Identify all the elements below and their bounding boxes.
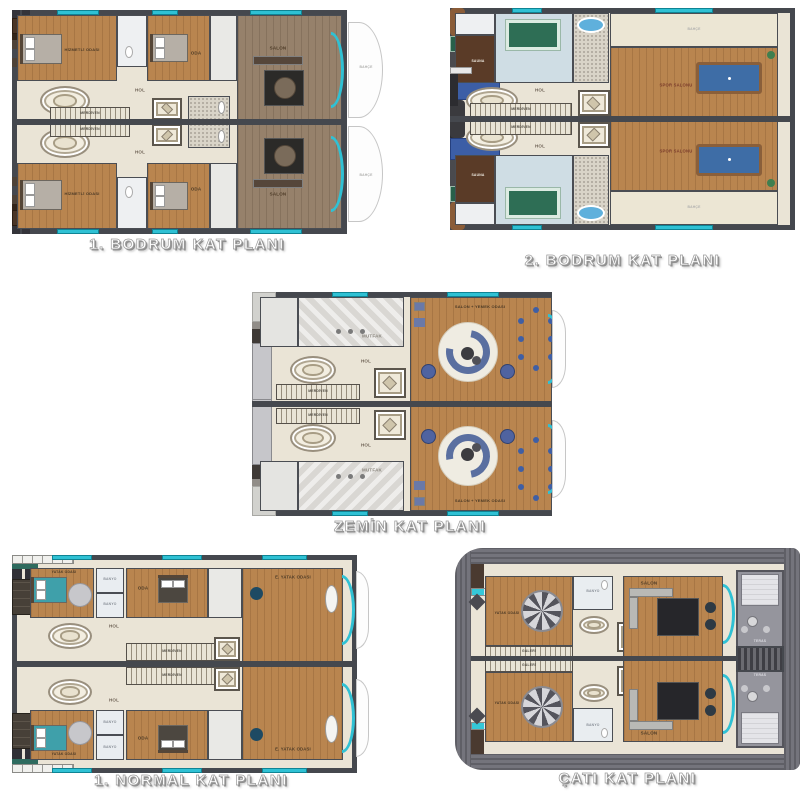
sink bbox=[218, 130, 225, 143]
living-label: SALON + YEMEK ODASI bbox=[455, 305, 505, 309]
curved-glass-window bbox=[342, 575, 355, 645]
bed bbox=[158, 725, 188, 751]
unit-lower: YATAK ODASI BANYO GALERİ SALON TERAS bbox=[471, 659, 784, 754]
hall-label: HOL bbox=[361, 444, 371, 449]
room-label: ODA bbox=[138, 737, 149, 742]
elevator bbox=[214, 637, 240, 661]
window bbox=[52, 555, 92, 560]
entry bbox=[260, 297, 298, 347]
lightwell bbox=[348, 22, 383, 118]
bedroom-label: YATAK ODASI bbox=[495, 612, 520, 616]
window bbox=[162, 555, 202, 560]
round-chairs bbox=[705, 602, 716, 613]
spa-pool bbox=[506, 20, 560, 50]
entry bbox=[455, 13, 495, 35]
toilet bbox=[601, 728, 608, 738]
unit-lower: SAUNA HOL MERDİVEN BAHÇE SPOR SALONU bbox=[450, 119, 795, 230]
stairs-label: MERDİVEN bbox=[308, 390, 328, 394]
master-label: E. YATAK ODASI bbox=[275, 576, 311, 581]
terrace-label: TERAS bbox=[754, 640, 767, 644]
unit-upper: YATAK ODASI BANYO GALERİ SALON TERAS bbox=[471, 564, 784, 659]
party-wall bbox=[12, 661, 357, 667]
room-label: ODA bbox=[191, 188, 202, 193]
round-rug bbox=[68, 583, 92, 607]
bed bbox=[22, 180, 62, 210]
window bbox=[655, 225, 713, 230]
coffee-tables bbox=[461, 448, 474, 461]
billiard-table bbox=[696, 144, 762, 176]
hall-label: HOL bbox=[109, 625, 119, 630]
entry bbox=[260, 461, 298, 511]
bath-label: BANYO bbox=[103, 578, 116, 582]
toilet bbox=[125, 186, 133, 198]
salon-label: SALON bbox=[641, 732, 658, 737]
hall-medallion bbox=[290, 424, 336, 452]
party-wall bbox=[252, 401, 552, 407]
hall-medallion bbox=[579, 684, 609, 702]
plan-zemin: MUTFAK SALON + YEMEK ODASI HOL MERDİVEN bbox=[252, 292, 568, 516]
entry bbox=[455, 203, 495, 225]
window bbox=[57, 10, 99, 15]
bed bbox=[152, 182, 188, 210]
hall-label: HOL bbox=[535, 145, 545, 150]
round-armchair bbox=[421, 364, 436, 379]
appliances bbox=[12, 569, 22, 579]
round-chairs bbox=[705, 705, 716, 716]
unit-lower: YATAK ODASI BANYO BANYO ODA E. YATAK ODA… bbox=[12, 664, 370, 773]
utility-room bbox=[210, 163, 237, 229]
plan-title-bodrum-1: 1. BODRUM KAT PLANI bbox=[12, 236, 362, 253]
stools bbox=[336, 474, 341, 479]
stairs-label: MERDİVEN bbox=[80, 128, 100, 132]
stairs-label: MERDİVEN bbox=[511, 108, 531, 112]
window bbox=[250, 229, 302, 234]
balcony bbox=[552, 310, 566, 388]
curved-glass-window bbox=[342, 683, 355, 753]
bed bbox=[22, 34, 62, 64]
corner-sofa bbox=[629, 721, 673, 730]
bedroom-label: YATAK ODASI bbox=[495, 702, 520, 706]
dark-rug bbox=[657, 682, 699, 720]
garden-label: BAHÇE bbox=[359, 66, 372, 70]
toilet bbox=[601, 580, 608, 590]
curved-glass-window bbox=[723, 674, 735, 734]
bathtub bbox=[325, 715, 338, 743]
room-label: ODA bbox=[138, 587, 149, 592]
coffee-tables bbox=[461, 347, 474, 360]
round-armchair bbox=[421, 429, 436, 444]
dark-rug bbox=[657, 598, 699, 636]
star-rug bbox=[521, 686, 563, 728]
coffee-table bbox=[469, 594, 486, 611]
floor-plan-sheet: HİZMETLİ ODASI ODA SALON BAHÇE HOL MERDİ… bbox=[0, 0, 800, 800]
salon-label: SALON bbox=[270, 193, 287, 198]
bath-label: BANYO bbox=[103, 603, 116, 607]
terrace-label: TERAS bbox=[754, 674, 767, 678]
desk bbox=[471, 564, 484, 588]
roof-edge-left bbox=[455, 548, 471, 770]
window bbox=[512, 8, 542, 13]
plan-cati: YATAK ODASI BANYO GALERİ SALON TERAS bbox=[455, 548, 800, 770]
elevator bbox=[374, 368, 406, 398]
kitchen bbox=[298, 461, 404, 511]
desk bbox=[471, 730, 484, 754]
bath-label: BANYO bbox=[103, 721, 116, 725]
plan-title-cati: ÇATI KAT PLANI bbox=[455, 770, 800, 787]
stairs-label: MERDİVEN bbox=[511, 126, 531, 130]
stairs-label: MERDİVEN bbox=[308, 414, 328, 418]
window bbox=[332, 511, 368, 516]
garden-label: BAHÇE bbox=[687, 206, 700, 210]
plan-title-normal-1: 1. NORMAL KAT PLANI bbox=[12, 772, 370, 789]
terrace-bridge bbox=[736, 646, 784, 672]
plant bbox=[767, 51, 775, 59]
gym-label: SPOR SALONU bbox=[660, 84, 693, 89]
hall-label: HOL bbox=[361, 360, 371, 365]
garden-label: BAHÇE bbox=[359, 174, 372, 178]
living-label: SALON + YEMEK ODASI bbox=[455, 499, 505, 503]
sauna-label: SAUNA bbox=[471, 174, 484, 178]
bed bbox=[33, 725, 67, 751]
dining-chairs bbox=[518, 484, 524, 490]
hall-label: HOL bbox=[135, 89, 145, 94]
bedroom-label: YATAK ODASI bbox=[52, 753, 77, 757]
terrace-table bbox=[747, 691, 758, 702]
curved-glass-window bbox=[331, 136, 344, 212]
round-carpet bbox=[274, 77, 296, 99]
gallery-label: GALERİ bbox=[522, 650, 536, 654]
sofa bbox=[253, 56, 303, 65]
salon-label: SALON bbox=[641, 582, 658, 587]
elevator bbox=[152, 98, 182, 120]
elevator bbox=[374, 410, 406, 440]
elevator bbox=[578, 90, 610, 116]
window bbox=[447, 511, 499, 516]
hall-label: HOL bbox=[109, 699, 119, 704]
weight-rack bbox=[450, 74, 458, 106]
corner-sofa bbox=[629, 588, 673, 597]
round-rug bbox=[68, 721, 92, 745]
round-armchair bbox=[500, 429, 515, 444]
laundry bbox=[208, 710, 242, 760]
lightwell bbox=[356, 679, 369, 757]
window bbox=[57, 229, 99, 234]
party-wall bbox=[471, 656, 736, 661]
elevator bbox=[152, 124, 182, 146]
unit-lower: HİZMETLİ ODASI ODA SALON BAHÇE HOL MERDİ… bbox=[12, 122, 384, 234]
hall-medallion bbox=[290, 356, 336, 384]
round-armchair bbox=[250, 728, 263, 741]
bathroom bbox=[117, 177, 147, 229]
hall-medallion bbox=[48, 679, 92, 705]
gym-label: SPOR SALONU bbox=[660, 150, 693, 155]
lounger bbox=[741, 712, 779, 744]
unit-upper: SAUNA HOL MERDİVEN BAHÇE SPOR SALONU bbox=[450, 8, 795, 119]
toilet bbox=[125, 46, 133, 58]
sink bbox=[218, 101, 225, 114]
roof-edge-right bbox=[784, 548, 800, 770]
kitchen-label: MUTFAK bbox=[362, 469, 382, 474]
bath-label: BANYO bbox=[103, 746, 116, 750]
round-carpet bbox=[274, 145, 296, 167]
dining-chairs bbox=[518, 318, 524, 324]
salon-label: SALON bbox=[270, 47, 287, 52]
window bbox=[152, 10, 178, 15]
plan-title-zemin: ZEMİN KAT PLANI bbox=[252, 518, 568, 535]
star-rug bbox=[521, 590, 563, 632]
terrace-table bbox=[747, 616, 758, 627]
bathroom bbox=[117, 15, 147, 67]
gallery-label: GALERİ bbox=[522, 664, 536, 668]
bath-label: BANYO bbox=[586, 724, 599, 728]
window bbox=[262, 555, 307, 560]
room-label: ODA bbox=[191, 52, 202, 57]
lounger bbox=[741, 574, 779, 606]
sauna-label: SAUNA bbox=[471, 60, 484, 64]
curved-glass-window bbox=[331, 32, 344, 108]
bath-label: BANYO bbox=[586, 590, 599, 594]
master-bedroom bbox=[242, 664, 343, 760]
bathtub bbox=[325, 585, 338, 613]
kitchen-label: MUTFAK bbox=[362, 335, 382, 340]
master-label: E. YATAK ODASI bbox=[275, 748, 311, 753]
party-wall bbox=[450, 116, 795, 122]
lightwell bbox=[356, 571, 369, 649]
corner-sofa bbox=[629, 689, 638, 721]
unit-lower: MUTFAK SALON + YEMEK ODASI HOL MERDİVEN bbox=[252, 404, 568, 516]
stairs-label: MERDİVEN bbox=[80, 112, 100, 116]
round-armchair bbox=[250, 587, 263, 600]
jacuzzi bbox=[577, 205, 605, 221]
jacuzzi bbox=[577, 17, 605, 33]
elevator bbox=[214, 667, 240, 691]
window bbox=[250, 10, 302, 15]
spa-pool bbox=[506, 188, 560, 218]
plant bbox=[767, 179, 775, 187]
plan-bodrum-1: HİZMETLİ ODASI ODA SALON BAHÇE HOL MERDİ… bbox=[12, 10, 384, 234]
service-room-label: HİZMETLİ ODASI bbox=[64, 48, 99, 52]
master-bedroom bbox=[242, 568, 343, 664]
appliances bbox=[12, 749, 22, 759]
bed bbox=[158, 577, 188, 603]
hall-label: HOL bbox=[135, 151, 145, 156]
curved-glass-window bbox=[723, 584, 735, 644]
billiard-table bbox=[696, 62, 762, 94]
stairs-label: MERDİVEN bbox=[162, 650, 182, 654]
bedroom-label: YATAK ODASI bbox=[52, 571, 77, 575]
window bbox=[447, 292, 499, 297]
armchair-pair bbox=[414, 497, 425, 506]
roof-edge-bottom bbox=[455, 754, 800, 770]
balcony bbox=[552, 420, 566, 498]
bed bbox=[152, 34, 188, 62]
sofa bbox=[253, 179, 303, 188]
unit-upper: YATAK ODASI BANYO BANYO ODA E. YATAK ODA… bbox=[12, 555, 370, 664]
laundry bbox=[208, 568, 242, 618]
window bbox=[332, 292, 368, 297]
stairs-label: MERDİVEN bbox=[162, 674, 182, 678]
sauna-room bbox=[455, 155, 495, 203]
plan-title-bodrum-2: 2. BODRUM KAT PLANI bbox=[450, 252, 795, 269]
armchair-pair bbox=[414, 302, 425, 311]
plan-normal-1: YATAK ODASI BANYO BANYO ODA E. YATAK ODA… bbox=[12, 555, 370, 773]
window bbox=[512, 225, 542, 230]
treadmill bbox=[450, 106, 465, 138]
utility-room bbox=[210, 15, 237, 81]
dining-table bbox=[252, 399, 272, 465]
window bbox=[152, 229, 178, 234]
service-room-label: HİZMETLİ ODASI bbox=[64, 192, 99, 196]
roof-edge-top bbox=[455, 548, 800, 564]
unit-upper: HİZMETLİ ODASI ODA SALON BAHÇE HOL MERDİ… bbox=[12, 10, 384, 122]
elevator bbox=[578, 122, 610, 148]
round-armchair bbox=[500, 364, 515, 379]
plan-bodrum-2: SAUNA HOL MERDİVEN BAHÇE SPOR SALONU bbox=[450, 8, 795, 248]
corner-sofa bbox=[629, 597, 638, 629]
unit-upper: MUTFAK SALON + YEMEK ODASI HOL MERDİVEN bbox=[252, 292, 568, 404]
garden-label: BAHÇE bbox=[687, 28, 700, 32]
stools bbox=[336, 329, 341, 334]
bench bbox=[450, 67, 472, 74]
hall-medallion bbox=[579, 616, 609, 634]
window bbox=[655, 8, 713, 13]
hall-label: HOL bbox=[535, 89, 545, 94]
hall-medallion bbox=[48, 623, 92, 649]
kitchen bbox=[298, 297, 404, 347]
party-wall bbox=[12, 119, 347, 125]
bed bbox=[33, 577, 67, 603]
